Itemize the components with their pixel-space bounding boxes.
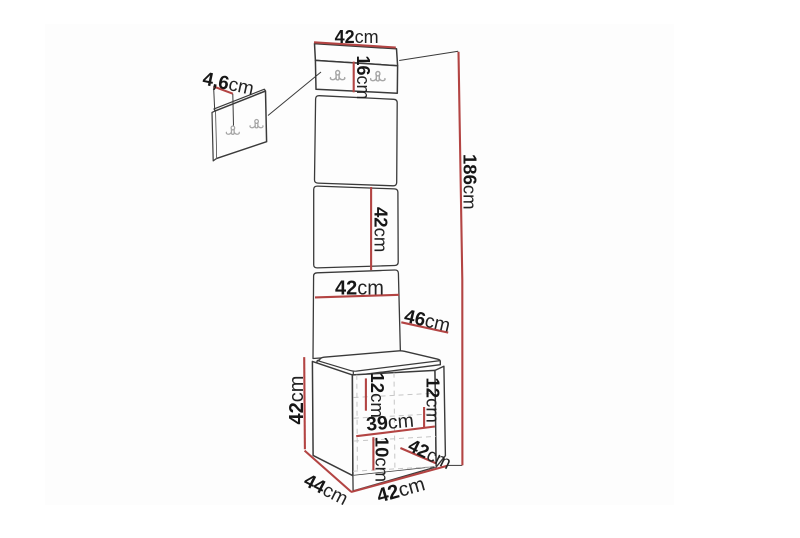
svg-text:186cm: 186cm — [460, 154, 481, 210]
svg-text:10cm: 10cm — [372, 437, 393, 482]
svg-text:42cm: 42cm — [335, 27, 379, 47]
svg-text:42cm: 42cm — [286, 376, 308, 425]
svg-text:42cm: 42cm — [371, 207, 392, 252]
svg-text:42cm: 42cm — [335, 278, 384, 300]
svg-text:16cm: 16cm — [353, 56, 373, 100]
svg-text:39cm: 39cm — [365, 410, 414, 436]
svg-text:12cm: 12cm — [367, 373, 388, 418]
svg-text:12cm: 12cm — [423, 378, 444, 423]
